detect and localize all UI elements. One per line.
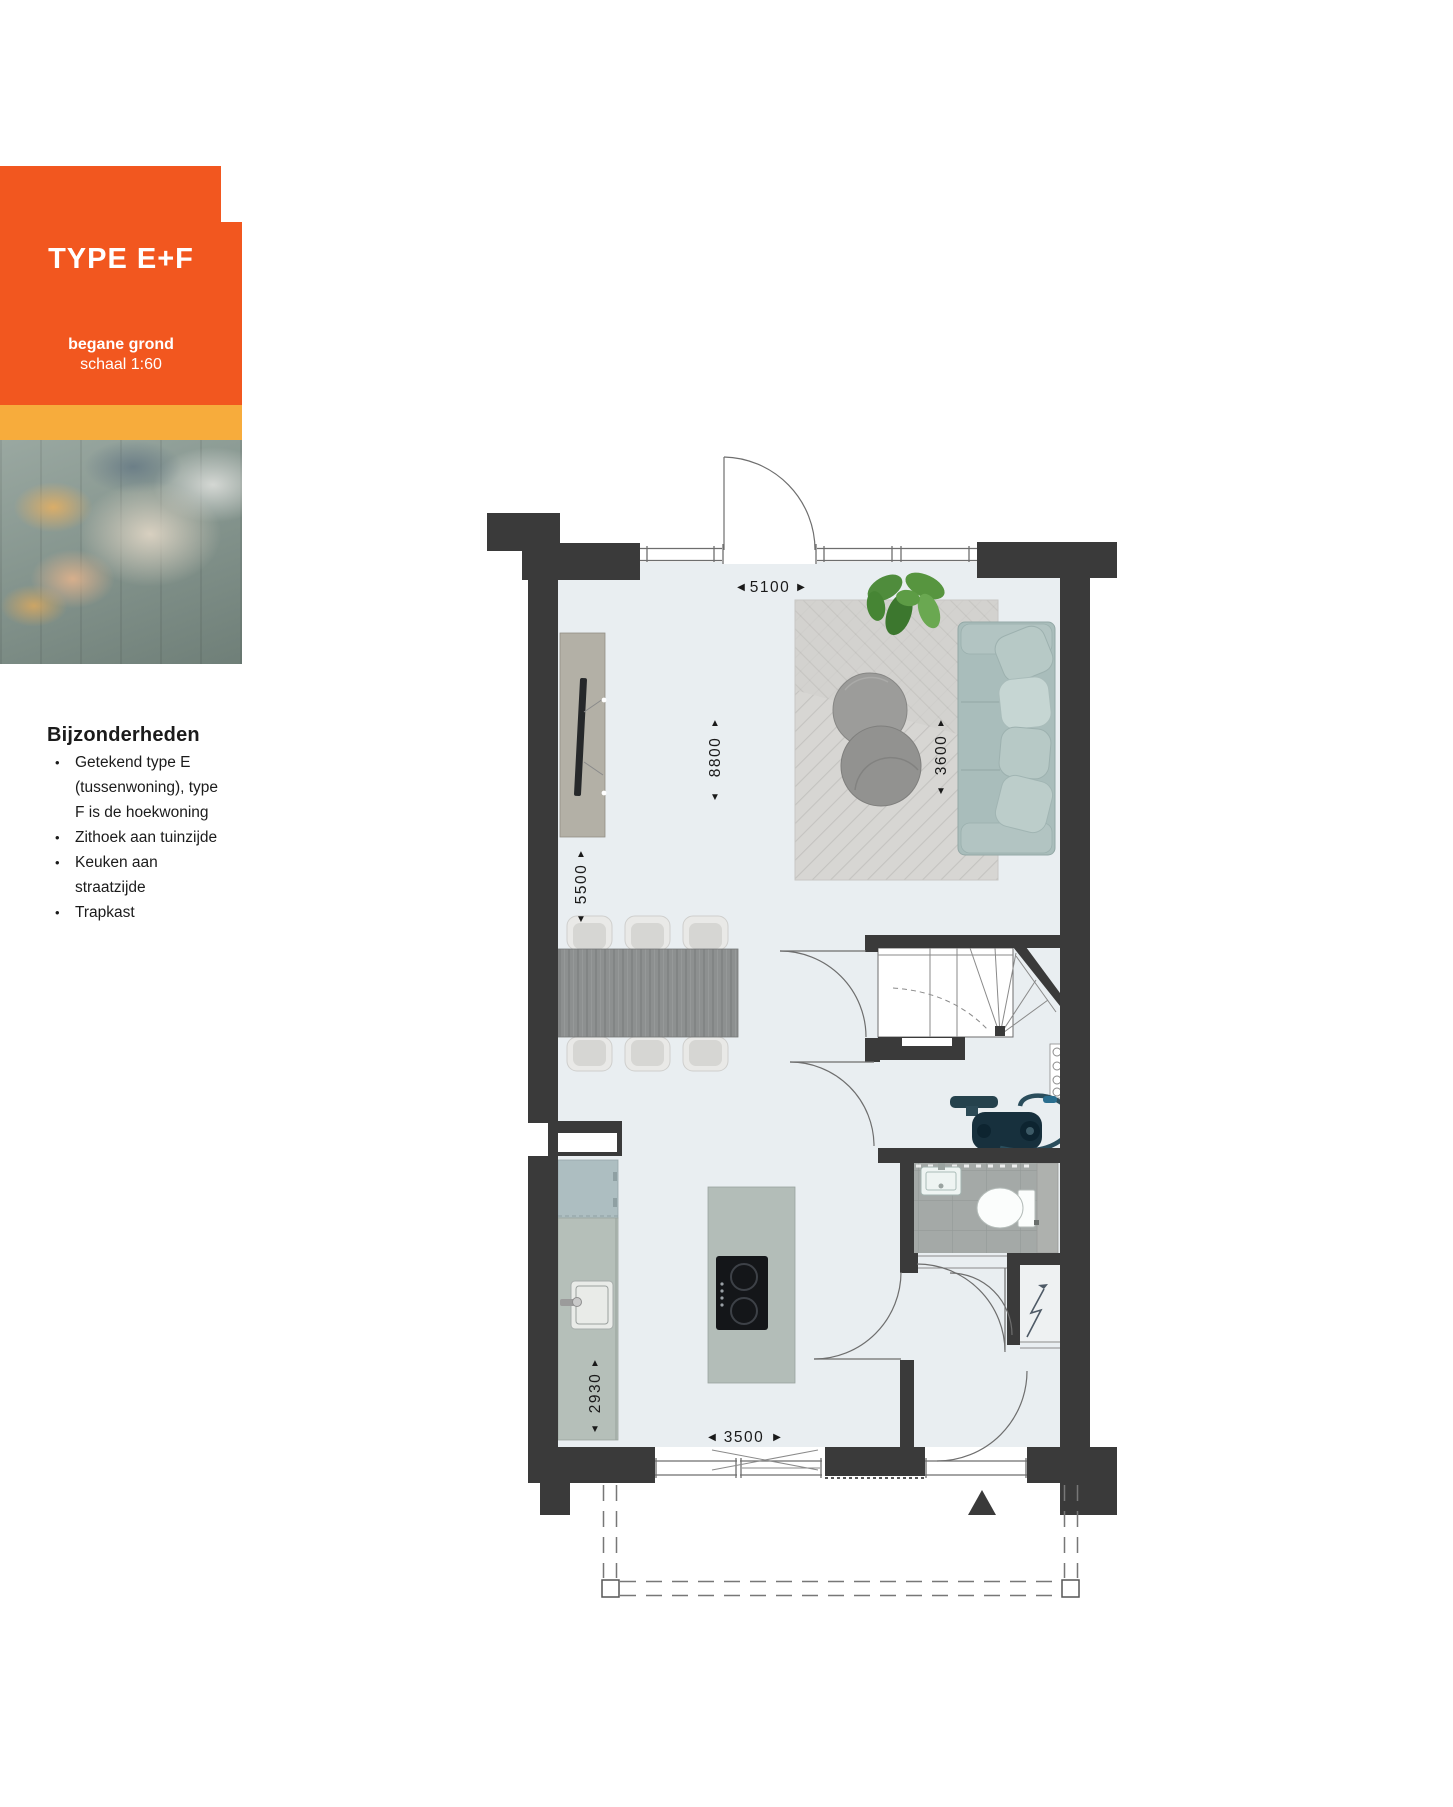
bathroom: [914, 1163, 1058, 1253]
tv-sideboard: [560, 633, 606, 837]
page: TYPE E+F begane grond schaal 1:60 Bijzon…: [0, 0, 1453, 1807]
garden-door: [724, 457, 815, 550]
arrow-up-icon: ▲: [936, 718, 946, 729]
floor-plan: ◀ 5100 ▶ ▲ 8800 ▼ ▲ 3600 ▼ ▲ 5500 ▼ ▲ 29…: [0, 0, 1453, 1807]
tall-cabinet: [558, 1160, 618, 1218]
duct-shaft: [1037, 1163, 1058, 1253]
dim-side-value: 5500: [573, 864, 590, 904]
dim-living-value: 3600: [933, 735, 950, 775]
dim-depth-value: 8800: [707, 737, 724, 777]
arrow-right-icon: ▶: [773, 1432, 781, 1443]
arrow-down-icon: ▼: [936, 786, 946, 797]
dim-kitchen-value: 2930: [587, 1373, 604, 1413]
kitchen-island: [708, 1187, 795, 1383]
cooktop: [716, 1256, 768, 1330]
arrow-down-icon: ▼: [710, 792, 720, 803]
dining-set: [558, 916, 738, 1071]
arrow-up-icon: ▲: [576, 849, 586, 860]
arrow-up-icon: ▲: [710, 718, 720, 729]
terrace-post: [602, 1580, 619, 1597]
arrow-up-icon: ▲: [590, 1358, 600, 1369]
dim-top-value: 5100: [750, 579, 790, 596]
washbasin: [921, 1163, 961, 1195]
toilet: [977, 1188, 1039, 1228]
dim-bottom-value: 3500: [724, 1429, 764, 1446]
arrow-left-icon: ◀: [737, 582, 745, 593]
meter-closet: [1020, 1265, 1060, 1348]
rear-facade-windows: [640, 457, 977, 564]
arrow-left-icon: ◀: [708, 1432, 716, 1443]
sofa: [958, 622, 1057, 855]
dining-chairs-top: [567, 916, 728, 950]
terrace-post: [1062, 1580, 1079, 1597]
arrow-down-icon: ▼: [590, 1424, 600, 1435]
arrow-down-icon: ▼: [576, 914, 586, 925]
dining-chairs-bottom: [567, 1037, 728, 1071]
entrance-arrow-icon: [968, 1490, 996, 1515]
arrow-right-icon: ▶: [797, 582, 805, 593]
dining-table: [558, 949, 738, 1037]
terrace-outline: [604, 1485, 1078, 1596]
